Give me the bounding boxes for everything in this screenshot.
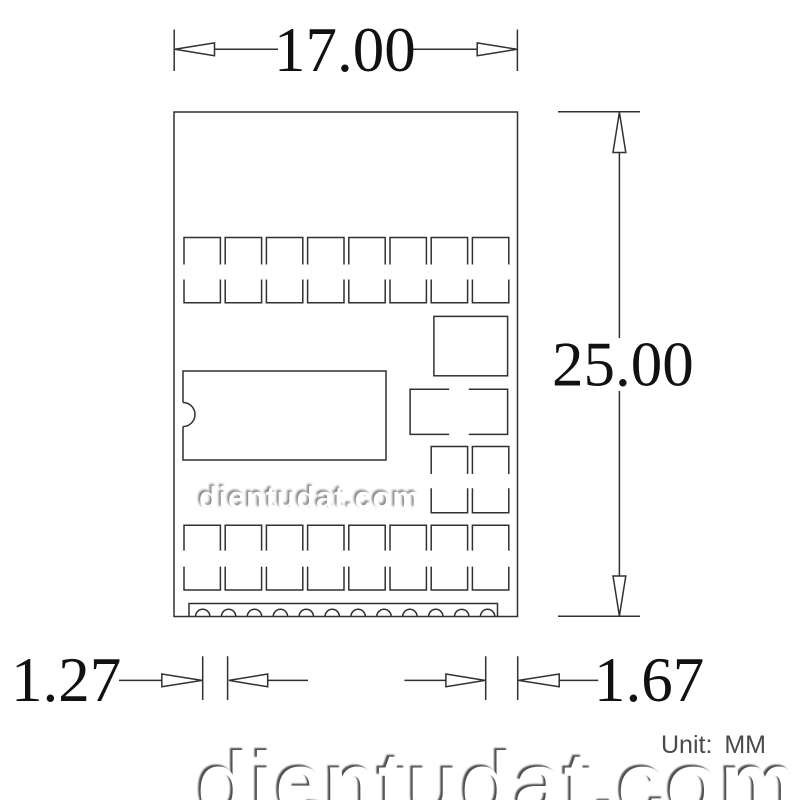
svg-text:1.67: 1.67 [594, 645, 704, 715]
svg-text:1.27: 1.27 [11, 645, 121, 715]
svg-text:25.00: 25.00 [552, 330, 694, 400]
svg-text:17.00: 17.00 [274, 15, 416, 85]
